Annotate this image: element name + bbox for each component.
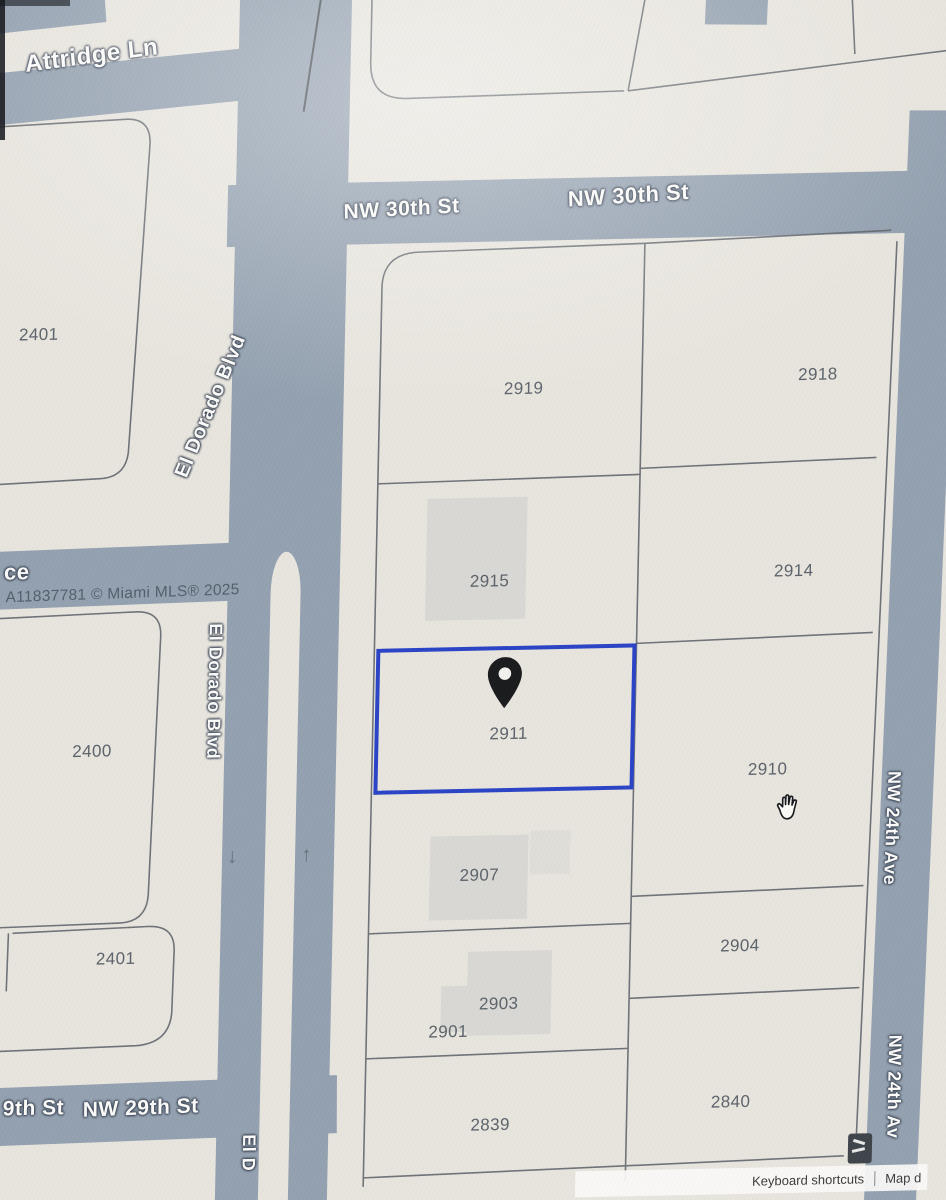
parcel-boundary bbox=[0, 926, 175, 1054]
parcel-2910[interactable]: 2910 bbox=[748, 759, 788, 780]
photo-edge-artifact bbox=[0, 0, 70, 6]
street-label-ce-partial: ce bbox=[4, 559, 30, 586]
grab-cursor-icon bbox=[773, 791, 804, 826]
map-screenshot: 2911 Attridge Ln NW 30th St NW 30th St E… bbox=[0, 0, 946, 1200]
map-pin-icon[interactable] bbox=[485, 656, 524, 711]
parcel-2911-label: 2911 bbox=[478, 723, 538, 744]
parcel-2915[interactable]: 2915 bbox=[470, 571, 510, 592]
street-label-nw-29th-st: NW 29th St bbox=[83, 1094, 199, 1122]
one-way-arrow-up-icon: ↑ bbox=[301, 843, 312, 867]
parcel-2903[interactable]: 2903 bbox=[479, 994, 519, 1015]
parcel-2840[interactable]: 2840 bbox=[711, 1092, 751, 1113]
parcel-2904[interactable]: 2904 bbox=[720, 936, 760, 957]
parcel-boundary bbox=[629, 457, 876, 998]
footer-icon bbox=[848, 1133, 873, 1164]
parcel-boundary bbox=[0, 611, 161, 929]
parcel-2919[interactable]: 2919 bbox=[504, 378, 544, 399]
street-label-9th-st-partial: 9th St bbox=[3, 1096, 65, 1121]
parcel-boundary bbox=[370, 0, 627, 99]
parcel-2401-bottom[interactable]: 2401 bbox=[96, 949, 136, 970]
parcel-2901[interactable]: 2901 bbox=[428, 1022, 468, 1043]
photo-edge-artifact bbox=[0, 0, 5, 140]
one-way-arrow-down-icon: ↓ bbox=[227, 845, 238, 869]
parcel-2914[interactable]: 2914 bbox=[774, 561, 814, 582]
parcel-2400[interactable]: 2400 bbox=[72, 741, 112, 762]
map-data-text: Map d bbox=[885, 1170, 921, 1186]
parcel-boundary bbox=[0, 119, 151, 487]
parcel-2401-top[interactable]: 2401 bbox=[19, 325, 59, 346]
map-canvas[interactable]: 2911 Attridge Ln NW 30th St NW 30th St E… bbox=[0, 0, 946, 1200]
parcel-2911-selected[interactable]: 2911 bbox=[373, 643, 636, 794]
street-label-nw-24th-ave-partial: NW 24th Av bbox=[881, 1035, 905, 1183]
footer-divider bbox=[874, 1171, 875, 1186]
parcel-2918[interactable]: 2918 bbox=[798, 364, 838, 385]
road-stub-north bbox=[705, 0, 769, 25]
building-footprint-2907b bbox=[530, 830, 571, 875]
keyboard-shortcuts-link[interactable]: Keyboard shortcuts bbox=[752, 1171, 864, 1188]
street-label-el-dorado-partial: El D bbox=[237, 1134, 259, 1200]
parcel-2839[interactable]: 2839 bbox=[470, 1115, 510, 1136]
street-label-el-dorado-blvd-lower: El Dorado Blvd bbox=[201, 623, 226, 818]
building-footprint-2915 bbox=[425, 497, 528, 621]
parcel-boundary bbox=[628, 0, 946, 91]
parcel-2907[interactable]: 2907 bbox=[459, 865, 499, 886]
